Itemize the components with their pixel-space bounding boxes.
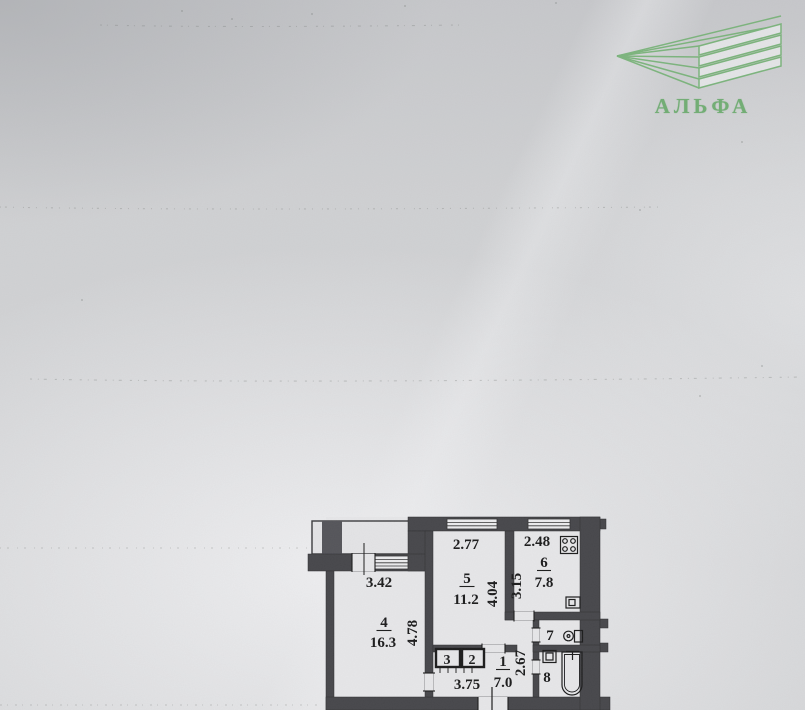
paper-grain-overlay <box>0 0 805 710</box>
floor-plan-drawing: 3.42 4 16.3 4.78 2.77 5 11.2 4.04 2.48 6… <box>0 0 805 710</box>
scanned-floor-plan-page: АЛЬФА <box>0 0 805 710</box>
